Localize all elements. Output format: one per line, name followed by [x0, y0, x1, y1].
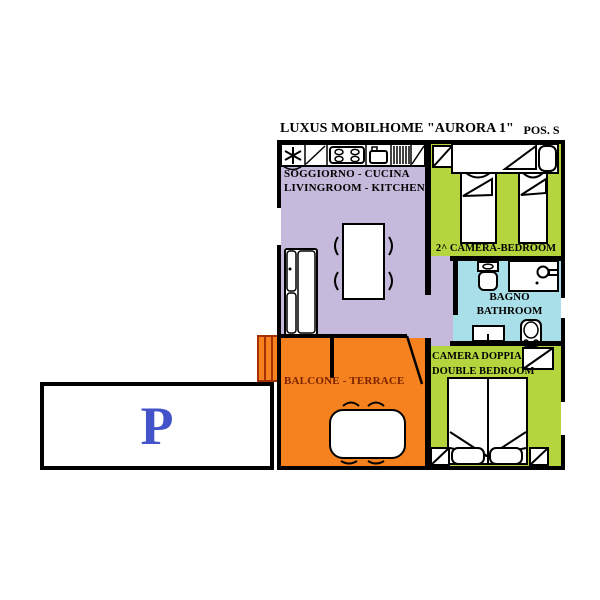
single-bed-right-icon [519, 173, 547, 243]
terrace-table-icon [330, 410, 405, 458]
living-room-label: SOGGIORNO - CUCINA LIVINGROOM - KITCHEN [284, 167, 425, 195]
wall [277, 245, 281, 470]
wall [450, 341, 565, 346]
pillow-icon [490, 448, 522, 464]
second-bedroom-label: 2^ CAMERA-BEDROOM [431, 243, 561, 254]
shower-icon [509, 261, 558, 291]
double-bed-icon [448, 378, 527, 464]
dining-table-icon [343, 224, 384, 299]
wall [561, 318, 565, 402]
bathroom-label-it: BAGNO [458, 290, 561, 304]
wall [450, 256, 565, 261]
entrance-door-icon [407, 336, 422, 384]
wardrobe-icon [433, 146, 452, 167]
double-bedroom-label-en: DOUBLE BEDROOM [432, 364, 534, 379]
wall [561, 144, 565, 298]
wall [277, 144, 281, 208]
parking-label: P [141, 399, 174, 453]
living-room-label-it: SOGGIORNO - CUCINA [284, 167, 425, 181]
wall [330, 338, 334, 378]
bathroom-label-en: BATHROOM [458, 304, 561, 318]
washbasin-icon [473, 326, 504, 341]
pillow-icon [452, 448, 484, 464]
sofa-icon [285, 249, 317, 335]
toilet-icon [478, 262, 498, 290]
floor-plan: LUXUS MOBILHOME "AURORA 1" POS. S SOGGIO… [0, 0, 600, 600]
wall [281, 334, 407, 338]
parking-area: P [40, 382, 274, 470]
bed-top-icon [452, 144, 558, 173]
wall [425, 144, 431, 295]
nightstand-left-icon [431, 448, 449, 465]
wall [425, 338, 431, 470]
double-bedroom-label-it: CAMERA DOPPIA [432, 349, 534, 364]
terrace-label: BALCONE - TERRACE [284, 375, 405, 387]
bathroom-label: BAGNO BATHROOM [458, 290, 561, 318]
living-room-label-en: LIVINGROOM - KITCHEN [284, 181, 425, 195]
wall [277, 140, 565, 144]
terrace-steps-icon [258, 336, 278, 381]
nightstand-right-icon [530, 448, 548, 465]
wall [277, 466, 565, 470]
position-label: POS. S [518, 123, 565, 138]
double-bedroom-label: CAMERA DOPPIA DOUBLE BEDROOM [432, 349, 534, 379]
page-title: LUXUS MOBILHOME "AURORA 1" [280, 121, 508, 137]
single-bed-left-icon [461, 173, 496, 243]
wall [561, 435, 565, 470]
